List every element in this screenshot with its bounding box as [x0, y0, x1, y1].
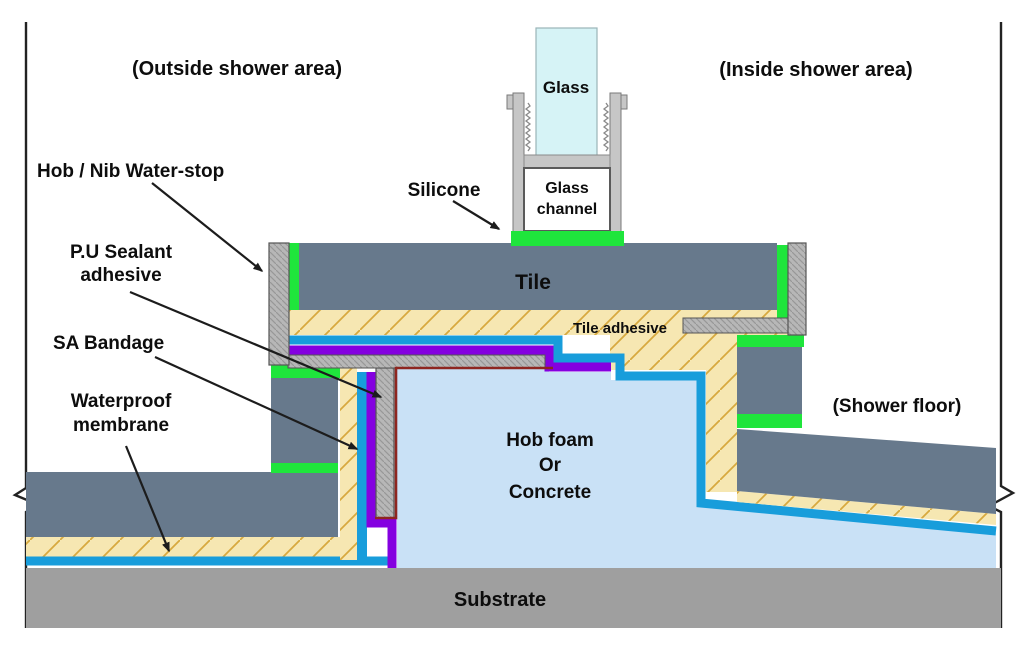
channel-gasket-right	[604, 103, 608, 151]
channel-interior	[524, 168, 610, 231]
pu-sealant-label-1: P.U Sealant	[70, 242, 173, 263]
silicone-label: Silicone	[408, 180, 481, 201]
shower-floor-label: (Shower floor)	[833, 396, 962, 417]
water-stop-vertical-leg	[376, 368, 394, 518]
hob-nib-label: Hob / Nib Water-stop	[37, 161, 224, 182]
silicone-tile-left	[289, 243, 299, 310]
waterproof-label-2: membrane	[73, 415, 169, 436]
outside-floor-adhesive	[26, 537, 352, 558]
water-stop-horizontal-flange	[288, 355, 545, 368]
silicone-step-lower	[737, 414, 802, 428]
pu-sealant-label-2: adhesive	[80, 265, 161, 286]
channel-shelf	[524, 155, 610, 168]
tile-adhesive-label: Tile adhesive	[573, 320, 667, 337]
step-adhesive-strip	[706, 347, 737, 492]
hob-foam-label-3: Concrete	[509, 482, 591, 503]
channel-wall-right	[610, 93, 621, 233]
construction-detail-diagram: (Outside shower area) (Inside shower are…	[0, 0, 1024, 651]
outside-floor-tile	[26, 472, 338, 537]
waterproof-label-1: Waterproof	[71, 391, 172, 412]
hob-foam-label-1: Hob foam	[506, 430, 594, 451]
substrate-label: Substrate	[454, 589, 546, 611]
diagram-canvas: (Outside shower area) (Inside shower are…	[0, 0, 1024, 651]
silicone-step-upper	[737, 335, 804, 347]
face-adhesive-strip	[340, 368, 357, 560]
outside-area-label: (Outside shower area)	[132, 58, 342, 80]
channel-gasket-left	[526, 103, 530, 151]
glass-label: Glass	[543, 78, 589, 97]
sa-bandage-label: SA Bandage	[53, 333, 164, 354]
glass-channel-label-1: Glass	[545, 180, 589, 197]
water-stop-inside-upstand	[788, 243, 806, 335]
inside-area-label: (Inside shower area)	[719, 59, 912, 81]
silicone-under-channel	[511, 231, 624, 246]
tile-label: Tile	[515, 271, 551, 294]
water-stop-outside-upstand	[269, 243, 289, 365]
outside-face-tile	[271, 378, 338, 463]
silicone-tile-right	[777, 245, 788, 318]
hob-foam-label-2: Or	[539, 455, 562, 476]
leader-silicone	[453, 201, 499, 229]
step-riser-tile	[737, 347, 802, 414]
glass-channel-label-2: channel	[537, 201, 597, 218]
channel-wall-left	[513, 93, 524, 233]
silicone-joint-lower	[271, 463, 338, 473]
